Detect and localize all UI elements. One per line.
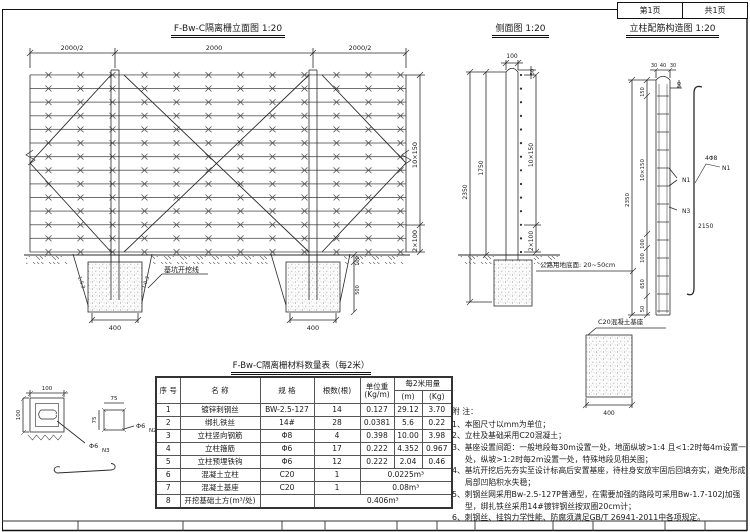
- dim-side-wires-lower: 2×100: [528, 231, 535, 251]
- materials-table: 序 号 名 称 规 格 根数(根) 单位重 (Kg/m) 每2米用量 (m) (…: [155, 376, 453, 509]
- dim-seg-b4: 50: [640, 306, 646, 312]
- dim-post-width: 100: [506, 53, 518, 60]
- cell-merged: 0.406m³: [314, 495, 452, 509]
- dim-seg-main: 10×150: [640, 158, 646, 181]
- sheet-number-box: 第1页: [617, 2, 683, 19]
- cell: 4.352: [394, 443, 422, 456]
- dim-section-height: 100: [16, 409, 22, 420]
- cell: 立柱箍筋: [180, 443, 260, 456]
- side-view-title: 侧面图 1:20: [468, 21, 573, 38]
- cell: 0.127: [360, 404, 394, 417]
- sheet-total: 共1页: [704, 5, 725, 16]
- excavation-label: 基坑开挖线: [164, 265, 199, 274]
- dim-stirrup-height: 75: [92, 416, 98, 423]
- dim-total-height: 2350: [462, 184, 469, 199]
- dim-bar-length: 2150: [698, 223, 713, 230]
- bar-mark-label: N1: [722, 165, 730, 172]
- drawing-sheet: 2000/2 2000 2000/2 10×150 2×100 400 400 …: [0, 0, 750, 532]
- note-item: 2、立柱及基础采用C20混凝土；: [452, 430, 746, 442]
- dim-f2-top: 100: [355, 256, 361, 266]
- notes-block: 附 注： 1、本图尺寸以mm为单位； 2、立柱及基础采用C20混凝土； 3、基座…: [452, 406, 746, 524]
- col-qty: 根数(根): [314, 377, 360, 404]
- cell: 14: [314, 404, 360, 417]
- stirrup-bar-label: Φ6: [136, 422, 145, 430]
- stirrup-detail: [99, 403, 134, 432]
- cell: C20: [260, 469, 314, 482]
- cell: 混凝土基座: [180, 482, 260, 495]
- side-view: [458, 60, 636, 306]
- col-usage-kg: (Kg): [422, 391, 452, 404]
- dim-seg-b2: 100: [640, 253, 646, 263]
- dim-cover-left: 30: [651, 63, 657, 69]
- dim-section-width: 100: [42, 386, 53, 392]
- dim-span-right: 2000/2: [349, 44, 372, 52]
- cell: 4: [314, 430, 360, 443]
- materials-table-title: F-Bw-C隔离栅材料数量表（每2米）: [150, 359, 452, 375]
- cell: 29.12: [394, 404, 422, 417]
- dim-wires-lower: 2×100: [411, 230, 419, 252]
- cell: 2.04: [394, 456, 422, 469]
- cell: [260, 495, 314, 509]
- elevation-title: F-Bw-C隔离栅立面图 1:20: [128, 21, 328, 38]
- notes-heading: 附 注：: [452, 406, 746, 418]
- row-boundary-label: 公路用地底面: 20~50cm: [540, 260, 615, 269]
- note-item: 1、本图尺寸以mm为单位；: [452, 419, 746, 431]
- cell: 8: [156, 495, 180, 509]
- dim-rebar-top-offset: 50: [677, 82, 683, 88]
- cell: Φ6: [260, 456, 314, 469]
- cell: 3.98: [422, 430, 452, 443]
- dim-wires-upper: 10×150: [411, 142, 419, 168]
- dim-seg-b1: 100: [640, 239, 646, 249]
- col-usage-m: (m): [394, 391, 422, 404]
- cell: 0.46: [422, 456, 452, 469]
- dim-stirrup-width: 75: [111, 396, 118, 402]
- sheet-number: 第1页: [639, 5, 660, 16]
- table-row: 7混凝土基座C2010.08m³: [156, 482, 452, 495]
- detail-labels: 100 100 Φ6 N3 75 75 Φ6 N2: [16, 386, 157, 454]
- col-usage: 每2米用量: [394, 377, 452, 391]
- dim-base-width-1: 400: [109, 324, 121, 332]
- rebar-view: [583, 68, 720, 408]
- mark-n3-label: N3: [682, 208, 690, 215]
- col-unit-weight-line2: (Kg/m): [362, 391, 393, 399]
- post-section-detail: [21, 390, 115, 473]
- col-name: 名 称: [180, 377, 260, 404]
- section-bar-label: Φ6: [89, 442, 98, 450]
- table-row: 4立柱箍筋Φ6170.2224.3520.967: [156, 443, 452, 456]
- rebar-view-title: 立柱配筋构造图 1:20: [605, 21, 740, 38]
- cell: 绑扎铁丝: [180, 417, 260, 430]
- mark-n1-label: N1: [682, 177, 690, 184]
- table-row: 1镀锌刺钢丝BW-2.5-127140.12729.123.70: [156, 404, 452, 417]
- cell: 混凝土立柱: [180, 469, 260, 482]
- dim-rebar-total: 2350: [625, 193, 631, 207]
- dim-f2-depth: 500: [355, 285, 361, 295]
- cell: Φ6: [260, 443, 314, 456]
- note-item: 5、刺钢丝网采用Bw-2.5-127P普通型，在需要加强的路段可采用Bw-1.7…: [452, 489, 746, 512]
- cell: 立柱预埋铁钩: [180, 456, 260, 469]
- cell: 6: [156, 469, 180, 482]
- dim-cover-right: 30: [670, 63, 676, 69]
- cell: 0.0381: [360, 417, 394, 430]
- cell: 1: [156, 404, 180, 417]
- table-row: 2绑扎铁丝14#280.03815.60.22: [156, 417, 452, 430]
- cell: 1: [314, 469, 360, 482]
- note-item: 3、基座设置间距：一般地段每30m设置一处，地面纵坡>1:4 且<1:2时每4m…: [452, 442, 746, 465]
- cell: 3.70: [422, 404, 452, 417]
- cell-merged: 0.0225m³: [360, 469, 452, 482]
- cell: 0.222: [360, 443, 394, 456]
- cell: 10.00: [394, 430, 422, 443]
- col-unit-weight: 单位重 (Kg/m): [360, 377, 394, 404]
- table-row: 5立柱预埋铁钩Φ6120.2222.040.46: [156, 456, 452, 469]
- dim-side-wires-upper: 10×150: [528, 143, 535, 167]
- cell: C20: [260, 482, 314, 495]
- cell: 1: [314, 482, 360, 495]
- cell: 12: [314, 456, 360, 469]
- cell: 开挖基础土方(m³/处): [180, 495, 260, 509]
- cell: 2: [156, 417, 180, 430]
- cell: 0.967: [422, 443, 452, 456]
- dim-span-left: 2000/2: [61, 44, 84, 52]
- dim-slope-left: 1:0.3: [76, 276, 86, 290]
- cell: 14#: [260, 417, 314, 430]
- note-item: 4、基坑开挖后先夯实至设计标高后安置基座，待柱身安放牢固后回填夯实，避免形成局部…: [452, 465, 746, 488]
- cell: 立柱竖向钢筋: [180, 430, 260, 443]
- cell: 5.6: [394, 417, 422, 430]
- side-view-labels: 100 50 1750 2350 10×150 2×100 公路用地底面: 20…: [462, 53, 615, 269]
- dim-above-ground: 1750: [478, 160, 485, 175]
- cell: 5: [156, 456, 180, 469]
- base-label: C20混凝土基座: [598, 317, 644, 326]
- dim-seg-b3: 650: [640, 279, 646, 289]
- sheet-total-box: 共1页: [682, 2, 748, 19]
- section-mark-label: N3: [102, 448, 110, 454]
- table-row: 8开挖基础土方(m³/处)0.406m³: [156, 495, 452, 509]
- table-header-row: 序 号 名 称 规 格 根数(根) 单位重 (Kg/m) 每2米用量: [156, 377, 452, 391]
- cell: 0.398: [360, 430, 394, 443]
- cell: Φ8: [260, 430, 314, 443]
- cell: 3: [156, 430, 180, 443]
- dim-span-mid: 2000: [206, 44, 223, 52]
- dim-base-width-2: 400: [307, 324, 319, 332]
- cell: BW-2.5-127: [260, 404, 314, 417]
- dim-core: 40: [660, 63, 666, 69]
- bar-spec-label: 4Φ8: [705, 155, 718, 162]
- cell: 0.222: [360, 456, 394, 469]
- table-row: 6混凝土立柱C2010.0225m³: [156, 469, 452, 482]
- cell: 0.22: [422, 417, 452, 430]
- cell: 7: [156, 482, 180, 495]
- cell: 4: [156, 443, 180, 456]
- dim-slope-right: 1:0.3: [141, 276, 151, 290]
- cell: 镀锌刺钢丝: [180, 404, 260, 417]
- note-item: 6、刺钢丝、挂钩力学性能、防腐须满足GB/T 26941-2011中各项规定。: [452, 512, 746, 524]
- cell-merged: 0.08m³: [360, 482, 452, 495]
- col-no: 序 号: [156, 377, 180, 404]
- col-spec: 规 格: [260, 377, 314, 404]
- dim-top-offset: 50: [530, 69, 536, 75]
- cell: 17: [314, 443, 360, 456]
- cell: 28: [314, 417, 360, 430]
- dim-seg-top: 150: [640, 87, 646, 97]
- table-row: 3立柱竖向钢筋Φ840.39810.003.98: [156, 430, 452, 443]
